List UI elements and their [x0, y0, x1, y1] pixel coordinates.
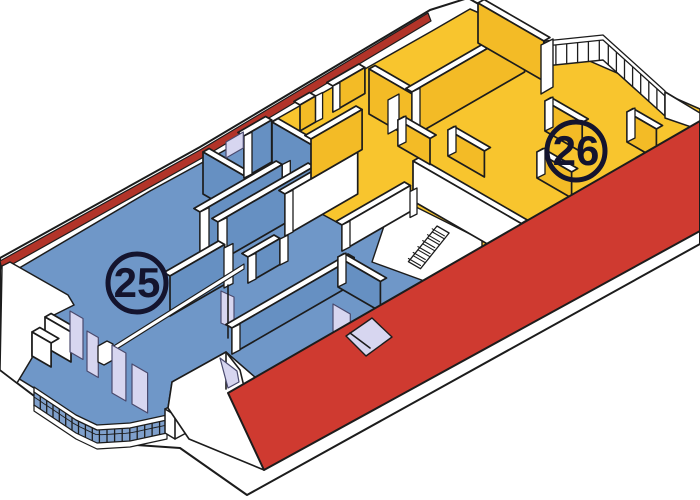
- svg-text:25: 25: [114, 259, 161, 306]
- svg-text:26: 26: [553, 127, 600, 174]
